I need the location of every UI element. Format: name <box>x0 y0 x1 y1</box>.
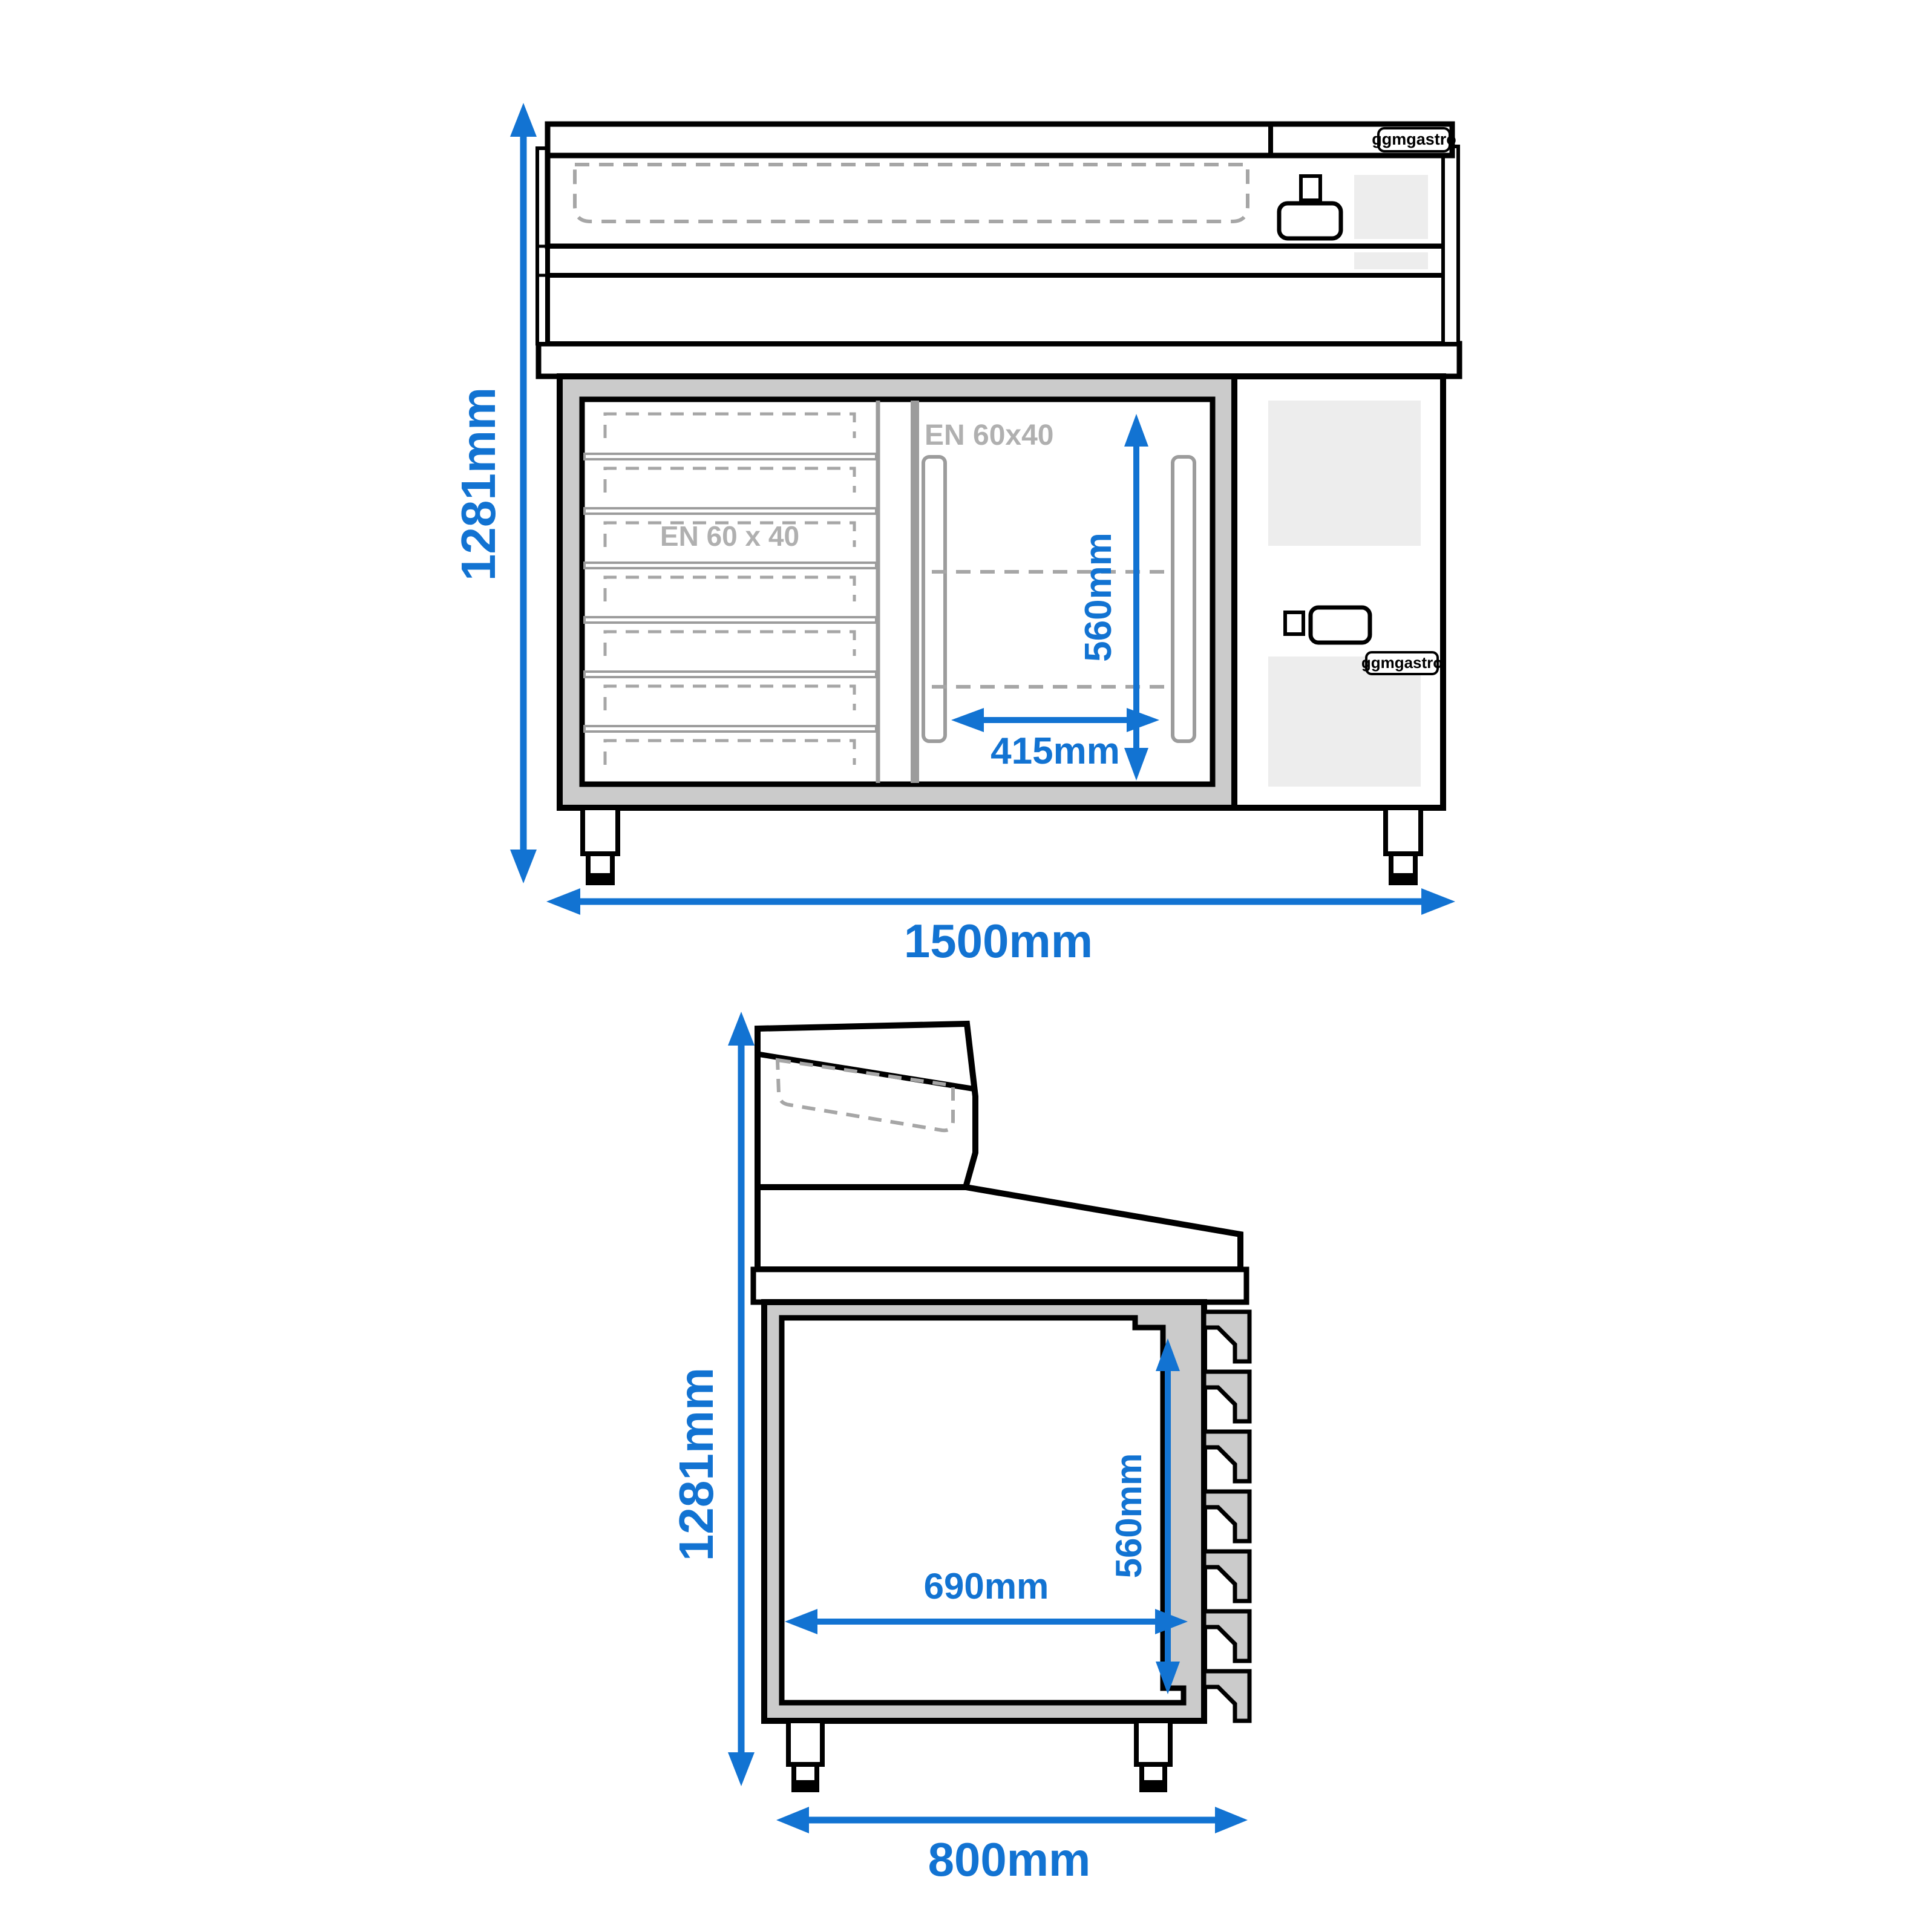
front-left-foot <box>583 808 618 854</box>
side-left-foot-step <box>794 1764 817 1783</box>
rail-bracket <box>1204 1492 1249 1541</box>
rail-bracket <box>1204 1312 1249 1361</box>
door-height-label: 560mm <box>1078 532 1119 662</box>
side-height-label: 1281mm <box>669 1367 723 1561</box>
machine-vent-upper <box>1268 401 1421 546</box>
front-display-switch <box>1301 176 1320 200</box>
rail-bracket <box>1204 1432 1249 1481</box>
side-right-foot-base <box>1142 1783 1165 1790</box>
side-interior-width-label: 690mm <box>924 1566 1049 1606</box>
drawer-separator <box>585 563 876 568</box>
side-view: 690mm 560mm 1281mm 800mm <box>669 1012 1249 1886</box>
front-display-band-lower <box>548 275 1452 344</box>
dimension-side-width: 800mm <box>776 1807 1248 1886</box>
door-right-rail <box>1173 457 1194 741</box>
drawing-canvas: ggmgastro <box>0 0 1932 1932</box>
side-width-label: 800mm <box>928 1833 1091 1886</box>
side-right-foot-step <box>1142 1764 1165 1783</box>
drawer-separator <box>585 726 876 732</box>
dimension-side-height: 1281mm <box>669 1012 755 1786</box>
door-left-rail <box>923 457 945 741</box>
side-feet <box>788 1721 1170 1790</box>
front-right-foot-base <box>1391 876 1415 883</box>
drawer-area-label: EN 60 x 40 <box>660 520 799 552</box>
front-worktop-slab <box>539 344 1459 376</box>
side-interior-height-label: 560mm <box>1108 1453 1149 1579</box>
front-top-logo-text: ggmgastro <box>1372 130 1456 148</box>
front-right-foot-step <box>1391 854 1415 876</box>
drawer-separator <box>585 617 876 623</box>
front-right-edge-strip <box>1443 146 1458 344</box>
front-display-vent <box>1354 175 1428 239</box>
side-worktop-wedge <box>758 1187 1240 1269</box>
front-top-canopy-bar <box>548 124 1452 156</box>
side-right-foot <box>1136 1721 1170 1764</box>
front-height-label: 1281mm <box>451 387 505 581</box>
machine-switch <box>1285 612 1303 634</box>
front-machine-compartment: ggmgastro <box>1234 376 1443 808</box>
side-left-foot <box>788 1721 822 1764</box>
dimension-front-width: 1500mm <box>546 888 1455 968</box>
drawer-separator <box>585 508 876 514</box>
machine-vent-lower <box>1268 657 1421 787</box>
side-rail-brackets <box>1204 1312 1249 1721</box>
side-worktop-slab <box>753 1269 1246 1302</box>
front-right-foot <box>1386 808 1421 854</box>
front-side-logo-text: ggmgastro <box>1361 653 1442 672</box>
drawer-separator <box>585 454 876 459</box>
front-view: ggmgastro <box>451 103 1459 968</box>
door-width-label: 415mm <box>991 730 1120 772</box>
machine-control-panel <box>1311 607 1370 643</box>
front-display-control-panel <box>1279 203 1341 238</box>
rail-bracket <box>1204 1671 1249 1721</box>
front-display-band-upper <box>548 246 1452 275</box>
front-display-vent-strip <box>1354 252 1428 269</box>
dimension-front-height: 1281mm <box>451 103 537 883</box>
technical-drawing-page: ggmgastro <box>0 0 1932 1932</box>
side-left-foot-base <box>794 1783 817 1790</box>
front-width-label: 1500mm <box>904 914 1093 968</box>
front-feet <box>583 808 1421 883</box>
drawer-separator <box>585 672 876 677</box>
front-left-foot-base <box>588 876 612 883</box>
rail-bracket <box>1204 1611 1249 1661</box>
rail-bracket <box>1204 1372 1249 1421</box>
door-area-label: EN 60x40 <box>925 419 1054 451</box>
rail-bracket <box>1204 1551 1249 1601</box>
front-left-foot-step <box>588 854 612 876</box>
